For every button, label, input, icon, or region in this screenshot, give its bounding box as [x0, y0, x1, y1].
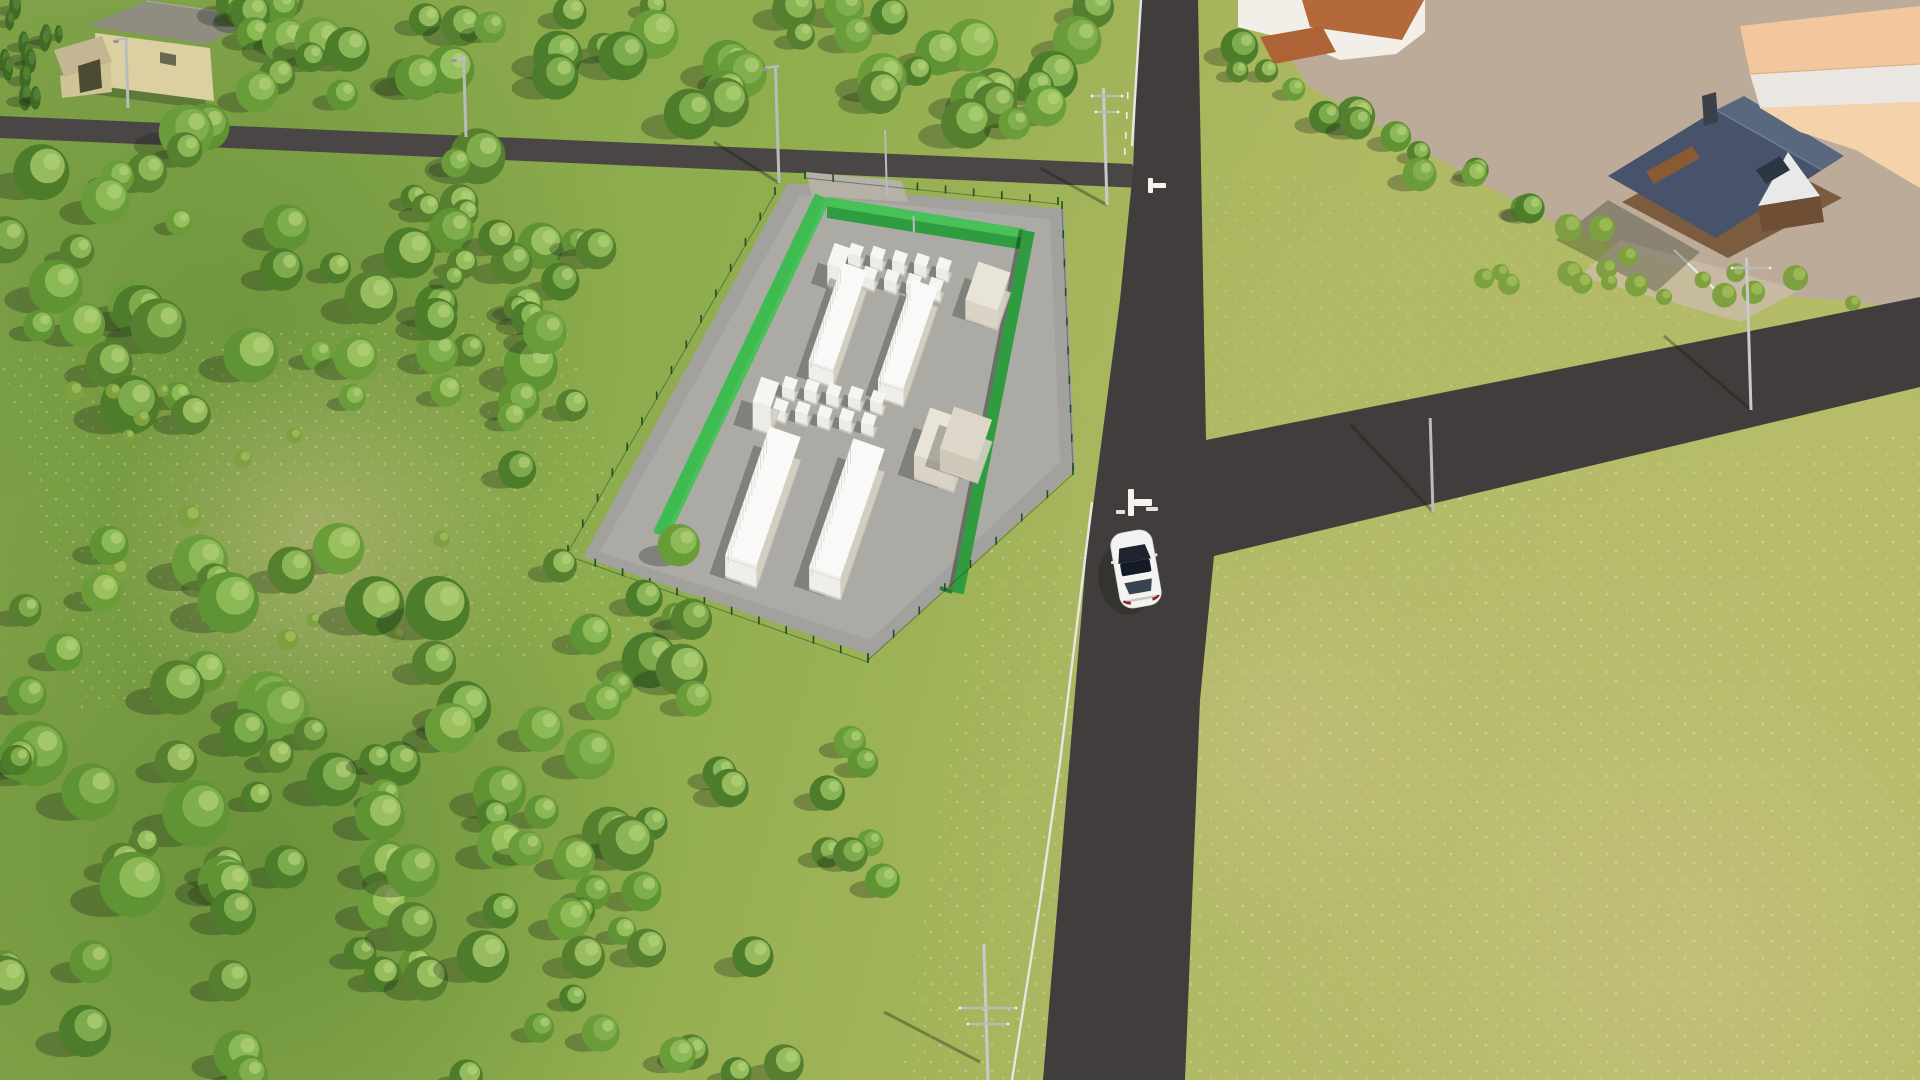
- bush-highlight: [1701, 273, 1709, 281]
- insulator: [1769, 267, 1772, 270]
- bush-highlight: [1851, 297, 1859, 305]
- canopy-highlight: [1054, 59, 1069, 74]
- insulator: [959, 1007, 962, 1010]
- fence-post: [676, 588, 678, 596]
- canopy-highlight: [198, 791, 218, 811]
- canopy-highlight: [66, 639, 77, 650]
- canopy-highlight: [373, 280, 389, 296]
- canopy-highlight: [470, 339, 480, 349]
- insulator: [967, 1023, 970, 1026]
- bush-highlight: [71, 383, 81, 393]
- fence-post: [1067, 347, 1069, 355]
- canopy-highlight: [731, 775, 743, 787]
- canopy-highlight: [560, 39, 575, 54]
- lamp-head: [451, 59, 457, 62]
- canopy-highlight: [281, 691, 299, 709]
- canopy-highlight: [18, 750, 27, 759]
- fence-post: [759, 213, 761, 221]
- canopy-highlight: [695, 687, 706, 698]
- canopy-highlight: [467, 1065, 477, 1075]
- canopy-highlight: [178, 747, 191, 760]
- canopy-highlight: [40, 315, 50, 325]
- canopy-highlight: [231, 582, 249, 600]
- canopy-highlight: [337, 257, 346, 266]
- canopy-highlight: [576, 844, 589, 857]
- canopy-highlight: [207, 658, 220, 671]
- canopy-highlight: [231, 966, 244, 979]
- canopy-highlight: [340, 531, 355, 546]
- canopy-highlight: [574, 989, 582, 997]
- canopy-highlight: [968, 106, 983, 121]
- canopy-highlight: [480, 137, 497, 154]
- fence-post: [1062, 230, 1064, 238]
- canopy-highlight: [592, 620, 604, 632]
- canopy-highlight: [453, 270, 460, 277]
- canopy-highlight: [864, 752, 873, 761]
- canopy-highlight: [918, 61, 927, 70]
- canopy-highlight: [996, 90, 1010, 104]
- canopy-highlight: [132, 385, 150, 403]
- canopy-highlight: [737, 1062, 746, 1071]
- bush-highlight: [112, 385, 120, 393]
- canopy-highlight: [1016, 113, 1026, 123]
- bush-highlight: [127, 431, 133, 437]
- canopy-highlight: [571, 905, 584, 918]
- canopy-highlight: [494, 805, 504, 815]
- conifer-highlight: [57, 26, 62, 36]
- chimney: [1702, 92, 1718, 126]
- canopy-highlight: [178, 386, 187, 395]
- bush-highlight: [1626, 249, 1636, 259]
- fence-post: [1071, 434, 1073, 442]
- canopy-highlight: [463, 12, 475, 24]
- fence-post: [944, 583, 946, 591]
- t-junction-marking: [1134, 499, 1152, 506]
- canopy-highlight: [283, 255, 296, 268]
- canopy-highlight: [891, 3, 902, 14]
- canopy-highlight: [646, 586, 657, 597]
- canopy-highlight: [605, 689, 616, 700]
- canopy-highlight: [288, 212, 302, 226]
- canopy-highlight: [540, 1018, 549, 1027]
- canopy-highlight: [278, 64, 289, 75]
- canopy-highlight: [498, 225, 509, 236]
- bush-highlight: [440, 532, 448, 540]
- canopy-highlight: [188, 113, 204, 129]
- canopy-highlight: [652, 812, 662, 822]
- canopy-highlight: [513, 407, 522, 416]
- bush-highlight: [1499, 266, 1507, 274]
- bush-highlight: [241, 452, 250, 461]
- canopy-highlight: [1397, 126, 1406, 135]
- canopy-highlight: [232, 869, 245, 882]
- canopy-highlight: [680, 531, 693, 544]
- canopy-highlight: [871, 834, 879, 842]
- canopy-highlight: [7, 224, 21, 238]
- bush-highlight: [140, 412, 148, 420]
- canopy-highlight: [436, 648, 449, 661]
- canopy-highlight: [179, 669, 195, 685]
- fence-post: [594, 559, 596, 567]
- fence-post: [785, 626, 787, 634]
- canopy-highlight: [383, 962, 394, 973]
- fence-post: [612, 468, 614, 476]
- canopy-highlight: [884, 869, 894, 879]
- canopy-highlight: [312, 722, 322, 732]
- bush-highlight: [1604, 261, 1614, 271]
- canopy-highlight: [1358, 112, 1368, 122]
- bush-highlight: [1751, 283, 1763, 295]
- canopy-highlight: [521, 386, 534, 399]
- canopy-highlight: [358, 343, 371, 356]
- conifer-highlight: [29, 51, 36, 64]
- canopy-highlight: [679, 1043, 690, 1054]
- canopy-highlight: [84, 309, 98, 323]
- canopy-highlight: [974, 27, 990, 43]
- canopy-highlight: [293, 554, 307, 568]
- fence-post: [700, 315, 702, 323]
- canopy-highlight: [58, 268, 74, 284]
- bush-highlight: [285, 631, 296, 642]
- canopy-highlight: [502, 774, 518, 790]
- canopy-highlight: [427, 198, 436, 207]
- canopy-highlight: [1327, 106, 1337, 116]
- bush-highlight: [1482, 270, 1492, 280]
- canopy-highlight: [259, 77, 272, 90]
- bush-highlight: [187, 507, 199, 519]
- canopy-highlight: [343, 84, 352, 93]
- fence-post: [597, 494, 599, 502]
- fence-post: [715, 289, 717, 297]
- canopy-highlight: [571, 1, 581, 11]
- fence-post: [626, 443, 628, 451]
- canopy-highlight: [453, 215, 467, 229]
- canopy-highlight: [1037, 75, 1048, 86]
- canopy-highlight: [258, 786, 267, 795]
- canopy-highlight: [192, 401, 204, 413]
- lane-dash: [1116, 510, 1125, 514]
- bush-highlight: [1793, 268, 1806, 281]
- insulator: [1117, 111, 1120, 114]
- fence-post: [917, 183, 919, 191]
- fence-post: [622, 568, 624, 576]
- canopy-highlight: [1241, 35, 1252, 46]
- fence-post: [656, 392, 658, 400]
- canopy-highlight: [93, 773, 110, 790]
- canopy-highlight: [249, 1061, 261, 1073]
- fence-post: [813, 636, 815, 644]
- canopy-highlight: [161, 307, 178, 324]
- canopy-highlight: [1531, 198, 1540, 207]
- lane-dash: [1146, 507, 1158, 511]
- canopy-highlight: [439, 339, 452, 352]
- fence-post: [730, 264, 732, 272]
- fence-post: [774, 187, 776, 195]
- canopy-highlight: [377, 586, 395, 604]
- canopy-highlight: [602, 1020, 613, 1031]
- canopy-highlight: [852, 843, 862, 853]
- canopy-highlight: [119, 166, 129, 176]
- fence-post: [582, 519, 584, 527]
- roadside-post: [1124, 148, 1126, 155]
- canopy-highlight: [107, 184, 122, 199]
- bush-highlight: [1507, 276, 1518, 287]
- fence-post: [1065, 288, 1067, 296]
- canopy-highlight: [419, 62, 433, 76]
- canopy-highlight: [802, 26, 811, 35]
- canopy-highlight: [278, 744, 288, 754]
- insulator: [1731, 267, 1734, 270]
- canopy-highlight: [629, 825, 645, 841]
- insulator: [1091, 95, 1094, 98]
- canopy-highlight: [466, 690, 482, 706]
- fence-post: [832, 174, 834, 182]
- fence-post: [995, 537, 997, 545]
- canopy-highlight: [491, 16, 501, 26]
- canopy-highlight: [684, 652, 699, 667]
- canopy-highlight: [1475, 165, 1483, 173]
- fence-post: [918, 607, 920, 615]
- bush-highlight: [1566, 217, 1580, 231]
- canopy-highlight: [562, 268, 574, 280]
- bush-highlight: [1662, 290, 1670, 298]
- canopy-highlight: [656, 18, 671, 33]
- fence-post: [671, 366, 673, 374]
- fence-post: [1021, 514, 1023, 522]
- canopy-highlight: [623, 921, 631, 929]
- canopy-highlight: [594, 880, 605, 891]
- canopy-highlight: [542, 230, 556, 244]
- canopy-highlight: [111, 532, 123, 544]
- canopy-highlight: [528, 836, 539, 847]
- canopy-highlight: [78, 240, 88, 250]
- canopy-highlight: [693, 605, 705, 617]
- canopy-highlight: [585, 942, 598, 955]
- roadside-post: [1127, 92, 1129, 99]
- fence-post: [1072, 463, 1074, 471]
- canopy-highlight: [93, 947, 106, 960]
- fence-post: [641, 417, 643, 425]
- bush-highlight: [1722, 285, 1734, 297]
- fence-post: [731, 607, 733, 615]
- canopy-highlight: [253, 337, 269, 353]
- canopy-highlight: [349, 34, 362, 47]
- insulator: [1015, 1007, 1018, 1010]
- canopy-highlight: [463, 253, 472, 262]
- insulator: [1095, 111, 1098, 114]
- canopy-highlight: [542, 714, 556, 728]
- canopy-highlight: [319, 344, 328, 353]
- insulator: [1121, 95, 1124, 98]
- fence-post: [973, 188, 975, 196]
- canopy-highlight: [881, 78, 894, 91]
- roadside-post: [1126, 112, 1128, 119]
- canopy-highlight: [452, 711, 467, 726]
- bush-highlight: [1634, 276, 1646, 288]
- canopy-highlight: [411, 236, 426, 251]
- canopy-highlight: [235, 897, 249, 911]
- fence-post: [1061, 201, 1063, 209]
- fence-post: [945, 185, 947, 193]
- canopy-highlight: [1421, 163, 1431, 173]
- aerial-scene: [0, 0, 1920, 1080]
- canopy-highlight: [745, 58, 759, 72]
- canopy-highlight: [785, 1051, 797, 1063]
- bush-highlight: [1580, 274, 1591, 285]
- canopy-highlight: [561, 554, 571, 564]
- canopy-highlight: [400, 748, 413, 761]
- canopy-highlight: [44, 153, 61, 170]
- lamp-head: [762, 68, 768, 71]
- canopy-highlight: [726, 85, 741, 100]
- bush-highlight: [1734, 265, 1744, 275]
- canopy-highlight: [643, 878, 655, 890]
- canopy-highlight: [415, 853, 431, 869]
- fence-post: [1066, 317, 1068, 325]
- bush-highlight: [1599, 218, 1612, 231]
- canopy-highlight: [427, 9, 437, 19]
- fence-post: [1029, 194, 1031, 202]
- canopy-highlight: [573, 394, 583, 404]
- canopy-highlight: [288, 852, 301, 865]
- fence-post: [893, 630, 895, 638]
- canopy-highlight: [414, 910, 429, 925]
- canopy-highlight: [513, 249, 526, 262]
- render-viewport: [0, 0, 1920, 1080]
- canopy-highlight: [186, 138, 197, 149]
- canopy-highlight: [111, 348, 125, 362]
- conifer-highlight: [23, 66, 30, 80]
- fence-post: [1057, 197, 1059, 205]
- canopy-highlight: [619, 676, 628, 685]
- canopy-highlight: [485, 939, 501, 955]
- canopy-highlight: [29, 682, 41, 694]
- fence-post: [758, 616, 760, 624]
- canopy-highlight: [829, 781, 840, 792]
- canopy-highlight: [252, 0, 264, 12]
- canopy-highlight: [103, 578, 115, 590]
- t-junction-marking: [1148, 178, 1153, 193]
- canopy-highlight: [87, 1013, 103, 1029]
- fence-post: [970, 560, 972, 568]
- canopy-highlight: [691, 97, 706, 112]
- pole-shaft: [126, 38, 128, 108]
- lamp-head: [113, 40, 119, 43]
- canopy-highlight: [1047, 92, 1059, 104]
- canopy-highlight: [180, 213, 188, 221]
- fence-post: [685, 340, 687, 348]
- canopy-highlight: [591, 737, 606, 752]
- canopy-highlight: [311, 47, 320, 56]
- canopy-highlight: [940, 37, 954, 51]
- canopy-highlight: [6, 964, 21, 979]
- fence-post: [867, 653, 869, 661]
- fence-post: [1070, 405, 1072, 413]
- canopy-highlight: [148, 159, 160, 171]
- canopy-highlight: [376, 749, 385, 758]
- canopy-highlight: [27, 599, 37, 609]
- conifer-highlight: [43, 30, 50, 43]
- conifer-highlight: [8, 12, 14, 23]
- canopy-highlight: [38, 731, 58, 751]
- canopy-highlight: [382, 799, 397, 814]
- fence-post: [1001, 191, 1003, 199]
- canopy-highlight: [1267, 63, 1274, 70]
- canopy-highlight: [557, 61, 571, 75]
- conifer-highlight: [6, 58, 13, 71]
- canopy-highlight: [648, 935, 660, 947]
- insulator: [1007, 1023, 1010, 1026]
- fence-post: [840, 645, 842, 653]
- bush-highlight: [161, 386, 167, 392]
- t-junction-marking: [1153, 183, 1166, 188]
- canopy-highlight: [547, 317, 560, 330]
- fence-post: [1064, 259, 1066, 267]
- conifer-highlight: [34, 88, 41, 101]
- canopy-highlight: [457, 153, 466, 162]
- fence-post: [1069, 376, 1071, 384]
- fence-post: [804, 171, 806, 179]
- canopy-highlight: [755, 943, 767, 955]
- canopy-highlight: [1238, 64, 1245, 71]
- canopy-highlight: [447, 380, 457, 390]
- canopy-highlight: [353, 388, 361, 396]
- canopy-highlight: [502, 899, 513, 910]
- canopy-highlight: [145, 833, 154, 842]
- canopy-highlight: [466, 204, 474, 212]
- canopy-highlight: [598, 235, 610, 247]
- canopy-highlight: [625, 39, 640, 54]
- roadside-post: [1125, 132, 1127, 139]
- canopy-highlight: [1079, 24, 1094, 39]
- canopy-highlight: [1295, 81, 1302, 88]
- canopy-highlight: [855, 22, 866, 33]
- canopy-highlight: [851, 731, 861, 741]
- canopy-highlight: [202, 544, 219, 561]
- canopy-highlight: [255, 22, 265, 32]
- canopy-highlight: [519, 457, 530, 468]
- canopy-highlight: [240, 1038, 255, 1053]
- canopy-highlight: [246, 717, 260, 731]
- canopy-highlight: [440, 586, 459, 605]
- bush-highlight: [292, 429, 300, 437]
- canopy-highlight: [438, 305, 451, 318]
- canopy-highlight: [543, 800, 553, 810]
- bush-highlight: [1608, 276, 1616, 284]
- fence-post: [1047, 490, 1049, 498]
- canopy-highlight: [1420, 145, 1427, 152]
- fence-post: [745, 238, 747, 246]
- canopy-highlight: [135, 862, 155, 882]
- t-junction-marking: [1128, 489, 1134, 516]
